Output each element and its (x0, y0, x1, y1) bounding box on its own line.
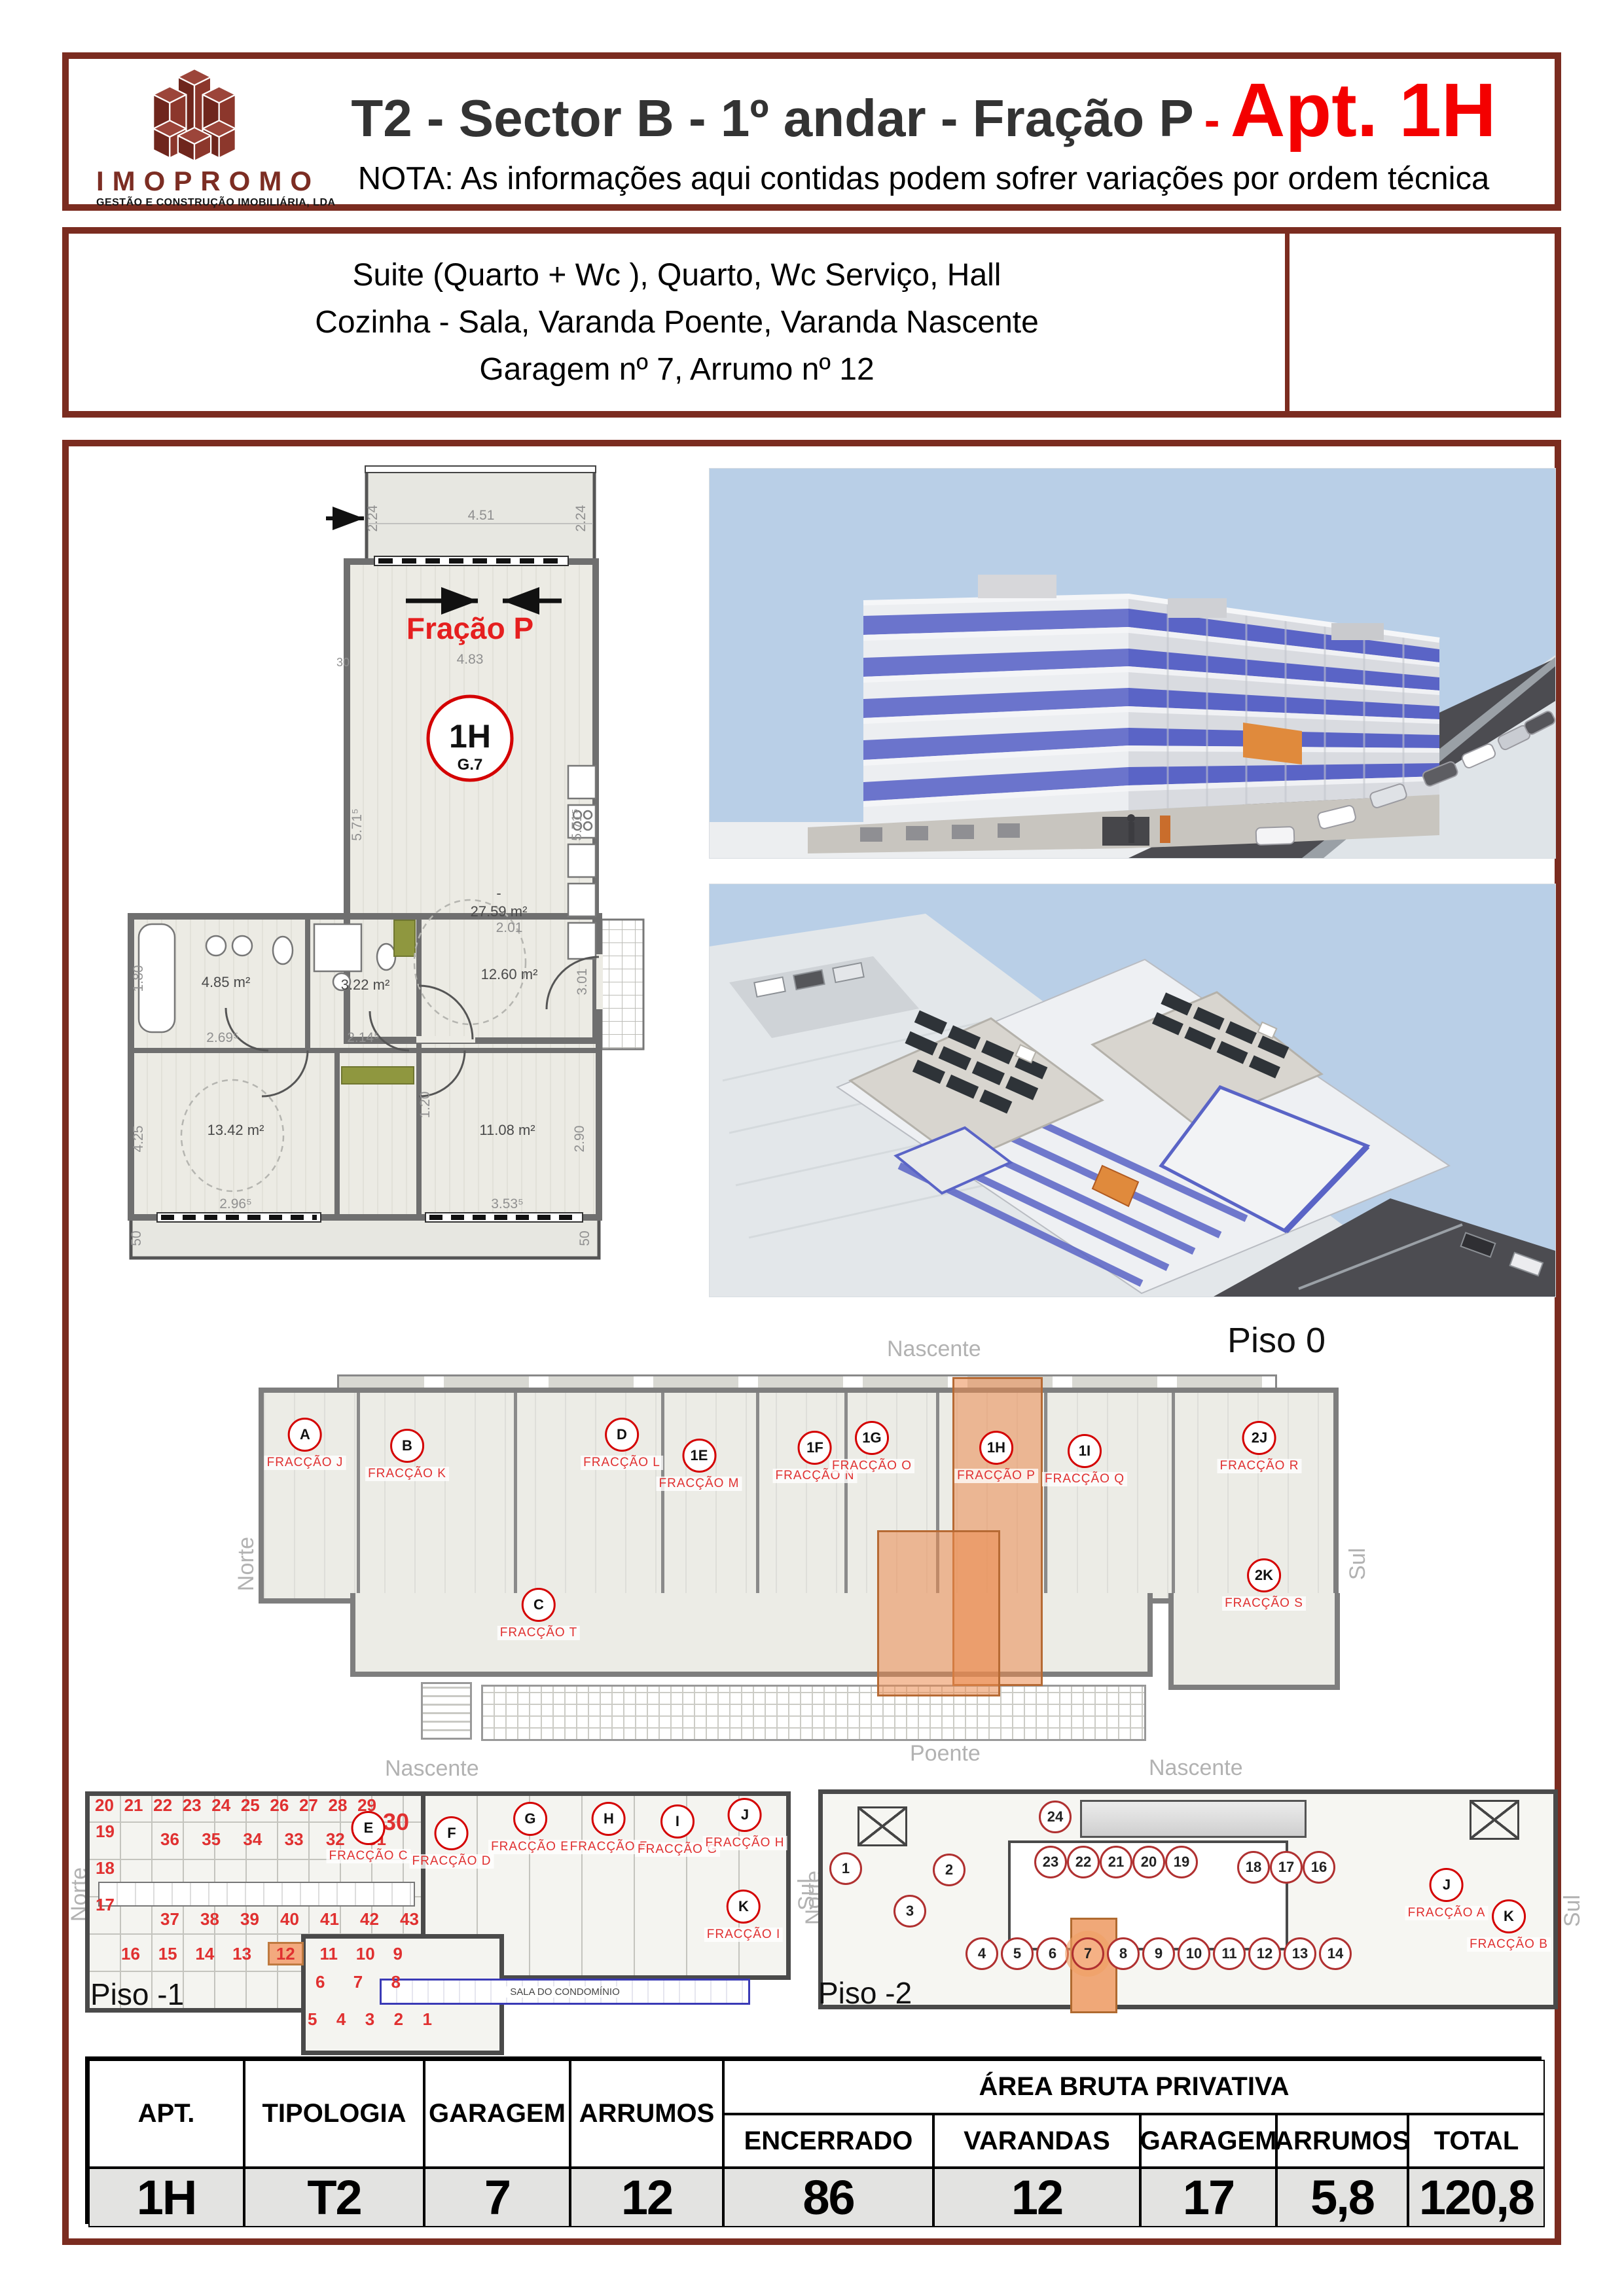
piso0-unit-c: C FRACÇÃO T (497, 1588, 580, 1640)
storage-number: 11 (320, 1944, 338, 1964)
storage-number: 17 (96, 1895, 115, 1914)
td-tipologia: T2 (244, 2168, 424, 2227)
property-sheet-page: { "colors":{"frame":"#7b2c20","accent_re… (0, 0, 1624, 2296)
logo-cubes-icon (135, 64, 253, 161)
dim-bedroom1-height: 4.25 (131, 1126, 146, 1153)
garage-number: 19 (1165, 1846, 1198, 1878)
td-encerrado: 86 (723, 2168, 933, 2227)
td-apt: 1H (88, 2168, 244, 2227)
garage-number: 23 (1034, 1846, 1067, 1878)
pm2-unit-k: K FRACÇÃO B (1467, 1899, 1551, 1952)
dim-bedroom2-width: 3.53⁵ (491, 1196, 524, 1211)
page-title: T2 - Sector B - 1º andar - Fração P - Ap… (351, 66, 1496, 154)
piso0-unit-a: A FRACÇÃO J (264, 1418, 346, 1470)
pm1-condo-room: SALA DO CONDOMÍNIO (380, 1979, 750, 2005)
storage-number: 14 (195, 1944, 214, 1964)
storage-number: 43 (400, 1909, 419, 1929)
area-bath: 4.85 m² (202, 974, 251, 990)
pm2-garage-row-right: 181716 (1237, 1851, 1335, 1884)
piso0-terrace (481, 1685, 1146, 1741)
garage-number: 12 (1248, 1937, 1281, 1970)
pm1-storage-row-4: 678 (316, 1972, 401, 1992)
pm2-garage-row-bottom: 4567891011121314 (965, 1937, 1352, 1970)
apartment-floor-plan: Fração P 1H G.7 4.51 2.24 2.24 30 4.83 5… (111, 458, 648, 1276)
storage-number: 15 (158, 1944, 177, 1964)
piso0-unit-1e: 1E FRACÇÃO M (657, 1439, 742, 1491)
dim-living-width: 4.83 (457, 652, 484, 667)
piso-minus2-label: Piso -2 (818, 1975, 912, 2011)
storage-number: 23 (183, 1795, 202, 1815)
garage-number: 18 (1237, 1851, 1270, 1884)
pm2-compass-sul: Sul (1560, 1895, 1585, 1927)
header-titles: T2 - Sector B - 1º andar - Fração P - Ap… (298, 59, 1549, 204)
piso0-stairs (421, 1682, 472, 1740)
garage-number: 10 (1178, 1937, 1210, 1970)
area-living: 27.59 m² (471, 903, 528, 920)
dim-parapet-left: 50 (129, 1230, 144, 1246)
pm1-unit-e: E FRACÇÃO C (327, 1811, 411, 1863)
piso0-main-band (259, 1388, 1339, 1604)
storage-number: 36 (160, 1829, 179, 1849)
storage-number: 3 (365, 2009, 374, 2029)
piso0-unit-2k: 2K FRACÇÃO S (1222, 1558, 1306, 1611)
summary-line-3: Garagem nº 7, Arrumo nº 12 (479, 346, 874, 393)
garage-number: 5 (1001, 1937, 1034, 1970)
dim-hall-height: 3.01 (575, 969, 590, 996)
piso0-compass-nascente: Nascente (887, 1336, 981, 1362)
dim-hall-depth: 1.20 (418, 1092, 433, 1119)
td-varandas: 12 (933, 2168, 1140, 2227)
storage-number: 41 (320, 1909, 339, 1929)
garage-number: 17 (1270, 1851, 1303, 1884)
th-garagem: GARAGEM (424, 2060, 570, 2168)
storage-number: 35 (202, 1829, 221, 1849)
storage-number: 27 (299, 1795, 318, 1815)
dim-bath-width: 2.69⁵ (206, 1030, 239, 1045)
storage-number: 1 (423, 2009, 432, 2029)
garage-number: 20 (1132, 1846, 1165, 1878)
dim-hall-width: 2.01 (496, 920, 523, 935)
piso0-highlight-fraction-p-lower (877, 1530, 1000, 1696)
title-dash: - (1204, 94, 1220, 147)
storage-number: 37 (160, 1909, 179, 1929)
storage-number: 34 (243, 1829, 262, 1849)
render-street-view (709, 468, 1556, 859)
area-hall: 12.60 m² (481, 966, 538, 982)
dim-wc-width: 2.14⁵ (347, 1030, 380, 1045)
pm2-stairs-right (1470, 1800, 1519, 1840)
pm1-storage-col-left: 191817 (96, 1821, 115, 1914)
piso0-label: Piso 0 (1227, 1320, 1326, 1361)
render-aerial-view (709, 884, 1556, 1297)
th-arrumos: ARRUMOS (570, 2060, 723, 2168)
td-arrumos: 12 (570, 2168, 723, 2227)
td-total: 120,8 (1408, 2168, 1545, 2227)
piso0-unit-1h: 1H FRACÇÃO P (954, 1431, 1038, 1483)
garage-number: 4 (965, 1937, 998, 1970)
storage-number: 40 (280, 1909, 299, 1929)
dim-bedroom2-height: 2.90 (572, 1126, 587, 1153)
summary-text: Suite (Quarto + Wc ), Quarto, Wc Serviço… (69, 234, 1285, 411)
storage-number: 25 (241, 1795, 260, 1815)
garage-number: 1 (829, 1852, 862, 1885)
garage-number: 8 (1107, 1937, 1140, 1970)
pm1-compass-nascente: Nascente (385, 1756, 479, 1782)
garage-number: 16 (1303, 1851, 1335, 1884)
storage-number: 9 (393, 1944, 403, 1964)
storage-number: 39 (240, 1909, 259, 1929)
summary-line-2: Cozinha - Sala, Varanda Poente, Varanda … (315, 299, 1039, 346)
td-garagem: 7 (424, 2168, 570, 2227)
garage-number: 24 (1039, 1801, 1072, 1833)
th-arrumos-area: ARRUMOS (1276, 2114, 1408, 2168)
garage-number: 2 (933, 1854, 965, 1886)
th-tipologia: TIPOLOGIA (244, 2060, 424, 2168)
pm2-ramp (1080, 1800, 1307, 1838)
pm1-unit-g: G FRACÇÃO E (488, 1802, 572, 1854)
garage-number: 14 (1319, 1937, 1352, 1970)
piso0-unit-d: D FRACÇÃO L (581, 1418, 663, 1470)
th-encerrado: ENCERRADO (723, 2114, 933, 2168)
garage-number: 3 (893, 1895, 926, 1928)
dim-bedroom1-width: 2.96⁵ (219, 1196, 252, 1211)
piso0-unit-1i: 1I FRACÇÃO Q (1042, 1434, 1127, 1486)
dim-balcony-depth-left: 2.24 (365, 505, 380, 531)
piso-minus2-plan: Nascente Poente Norte Sul 1 2 3 24 23222… (818, 1780, 1561, 2055)
dim-living-height-right: 5.71⁵ (569, 808, 585, 841)
piso-minus1-label: Piso -1 (90, 1977, 184, 2012)
logo: IMOPROMO GESTÃO E CONSTRUÇÃO IMOBILIÁRIA… (96, 64, 293, 209)
garage-number: 11 (1213, 1937, 1246, 1970)
garage-number: 7 (1072, 1937, 1104, 1970)
garage-number: 13 (1284, 1937, 1316, 1970)
brand-tagline: GESTÃO E CONSTRUÇÃO IMOBILIÁRIA, LDA (96, 197, 293, 209)
storage-number: 10 (356, 1944, 375, 1964)
storage-number: 22 (153, 1795, 172, 1815)
dim-balcony-depth-right: 2.24 (573, 505, 588, 531)
piso0-unit-2j: 2J FRACÇÃO R (1218, 1421, 1302, 1473)
fraction-label: Fração P (406, 611, 533, 645)
storage-number: 19 (96, 1821, 115, 1841)
th-total: TOTAL (1408, 2114, 1545, 2168)
storage-number: 18 (96, 1858, 115, 1878)
th-area-bruta-privativa: ÁREA BRUTA PRIVATIVA (723, 2060, 1545, 2114)
dim-bath-depth: 1.80 (131, 965, 146, 992)
area-bedroom2: 11.08 m² (479, 1122, 535, 1138)
pm1-storage-row-m2: 37383940414243 (160, 1909, 419, 1929)
storage-number: 13 (232, 1944, 251, 1964)
storage-number: 12 (270, 1944, 302, 1964)
storage-number: 24 (211, 1795, 230, 1815)
td-garagem-area: 17 (1140, 2168, 1276, 2227)
td-arrumos-area: 5,8 (1276, 2168, 1408, 2227)
summary-empty-cell (1285, 234, 1555, 411)
pm2-compass-nascente: Nascente (1149, 1755, 1243, 1781)
piso0-compass-poente: Poente (910, 1741, 981, 1767)
pm1-storage-row-5: 54321 (308, 2009, 432, 2029)
garage-number: 21 (1100, 1846, 1132, 1878)
dim-parapet-right: 50 (577, 1230, 592, 1246)
summary-line-1: Suite (Quarto + Wc ), Quarto, Wc Serviço… (353, 252, 1001, 299)
area-bedroom1: 13.42 m² (208, 1122, 264, 1138)
storage-number: 2 (394, 2009, 403, 2029)
pm1-corridor (98, 1882, 415, 1907)
dim-balcony-width: 4.51 (468, 508, 495, 523)
summary-box: Suite (Quarto + Wc ), Quarto, Wc Serviço… (62, 227, 1561, 418)
areas-table: APT. TIPOLOGIA GARAGEM ARRUMOS ÁREA BRUT… (85, 2056, 1542, 2224)
main-content-box: Fração P 1H G.7 4.51 2.24 2.24 30 4.83 5… (62, 440, 1561, 2245)
piso0-compass-sul: Sul (1345, 1548, 1371, 1580)
storage-number: 42 (360, 1909, 379, 1929)
header: IMOPROMO GESTÃO E CONSTRUÇÃO IMOBILIÁRIA… (62, 52, 1561, 211)
pm1-unit-j: J FRACÇÃO H (703, 1798, 787, 1850)
storage-number: 16 (121, 1944, 140, 1964)
garage-number: 9 (1142, 1937, 1175, 1970)
unit-code: 1H (449, 718, 491, 755)
storage-number: 33 (285, 1829, 304, 1849)
th-apt: APT. (88, 2060, 244, 2168)
brand-name: IMOPROMO (96, 166, 293, 197)
area-wc: 3.22 m² (341, 977, 390, 993)
pm1-storage-row-3: 161514131211109 (121, 1944, 403, 1964)
svg-text:-: - (496, 885, 501, 901)
storage-number: 38 (200, 1909, 219, 1929)
storage-number: 6 (316, 1972, 325, 1992)
storage-number: 26 (270, 1795, 289, 1815)
th-varandas: VARANDAS (933, 2114, 1140, 2168)
dim-living-height-left: 5.71⁵ (350, 808, 365, 841)
pm1-unit-k: K FRACÇÃO I (704, 1890, 783, 1942)
piso0-compass-norte: Norte (234, 1537, 259, 1591)
title-apartment: Apt. 1H (1231, 66, 1496, 154)
th-garagem-area: GARAGEM (1140, 2114, 1276, 2168)
garage-number: 6 (1036, 1937, 1069, 1970)
storage-number: 7 (353, 1972, 363, 1992)
storage-number: 21 (124, 1795, 143, 1815)
garage-number: 22 (1067, 1846, 1100, 1878)
piso0-plan: Nascente Poente Norte Sul A FRACÇÃO J B … (259, 1374, 1339, 1741)
pm2-stairs-left (857, 1806, 907, 1846)
unit-garage-ref: G.7 (458, 756, 483, 774)
pm1-unit-f: F FRACÇÃO D (410, 1816, 494, 1869)
dim-wall: 30 (336, 656, 350, 669)
pm2-garage-row-mid: 2322212019 (1034, 1846, 1198, 1878)
technical-note: NOTA: As informações aqui contidas podem… (358, 160, 1490, 197)
storage-number: 4 (336, 2009, 346, 2029)
title-main: T2 - Sector B - 1º andar - Fração P (351, 88, 1193, 149)
piso-minus1-plan: Nascente Poente Norte Sul SALA DO CONDOM… (85, 1784, 792, 2058)
storage-number: 8 (391, 1972, 401, 1992)
piso0-unit-b: B FRACÇÃO K (365, 1429, 449, 1481)
storage-number: 5 (308, 2009, 317, 2029)
storage-number: 20 (95, 1795, 114, 1815)
piso0-unit-1g: 1G FRACÇÃO O (829, 1421, 914, 1473)
